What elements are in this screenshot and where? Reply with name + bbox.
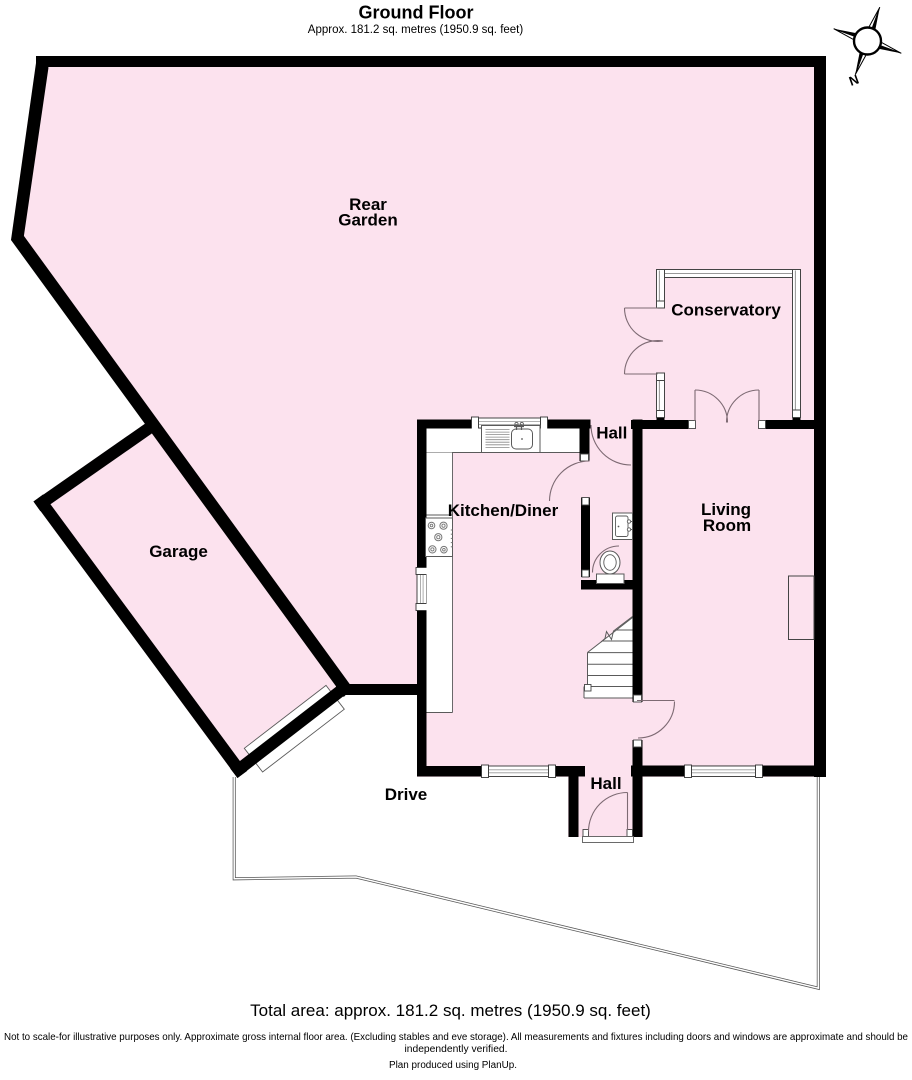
svg-text:independently verified.: independently verified. [404, 1044, 507, 1055]
svg-text:Garden: Garden [338, 211, 398, 230]
svg-text:Hall: Hall [596, 424, 627, 443]
svg-text:Not to scale-for illustrative: Not to scale-for illustrative purposes o… [4, 1032, 908, 1043]
svg-text:Garage: Garage [149, 542, 208, 561]
svg-text:Ground Floor: Ground Floor [359, 3, 474, 23]
svg-text:Conservatory: Conservatory [671, 301, 781, 320]
svg-text:Drive: Drive [385, 785, 428, 804]
svg-text:Approx. 181.2 sq. metres (1950: Approx. 181.2 sq. metres (1950.9 sq. fee… [308, 24, 524, 36]
svg-text:N: N [847, 72, 861, 89]
svg-text:Kitchen/Diner: Kitchen/Diner [448, 501, 559, 520]
svg-text:Total area: approx. 181.2 sq.: Total area: approx. 181.2 sq. metres (19… [250, 1001, 651, 1020]
svg-text:Hall: Hall [590, 774, 621, 793]
svg-text:Room: Room [703, 516, 751, 535]
svg-text:Plan produced using PlanUp.: Plan produced using PlanUp. [389, 1060, 517, 1071]
